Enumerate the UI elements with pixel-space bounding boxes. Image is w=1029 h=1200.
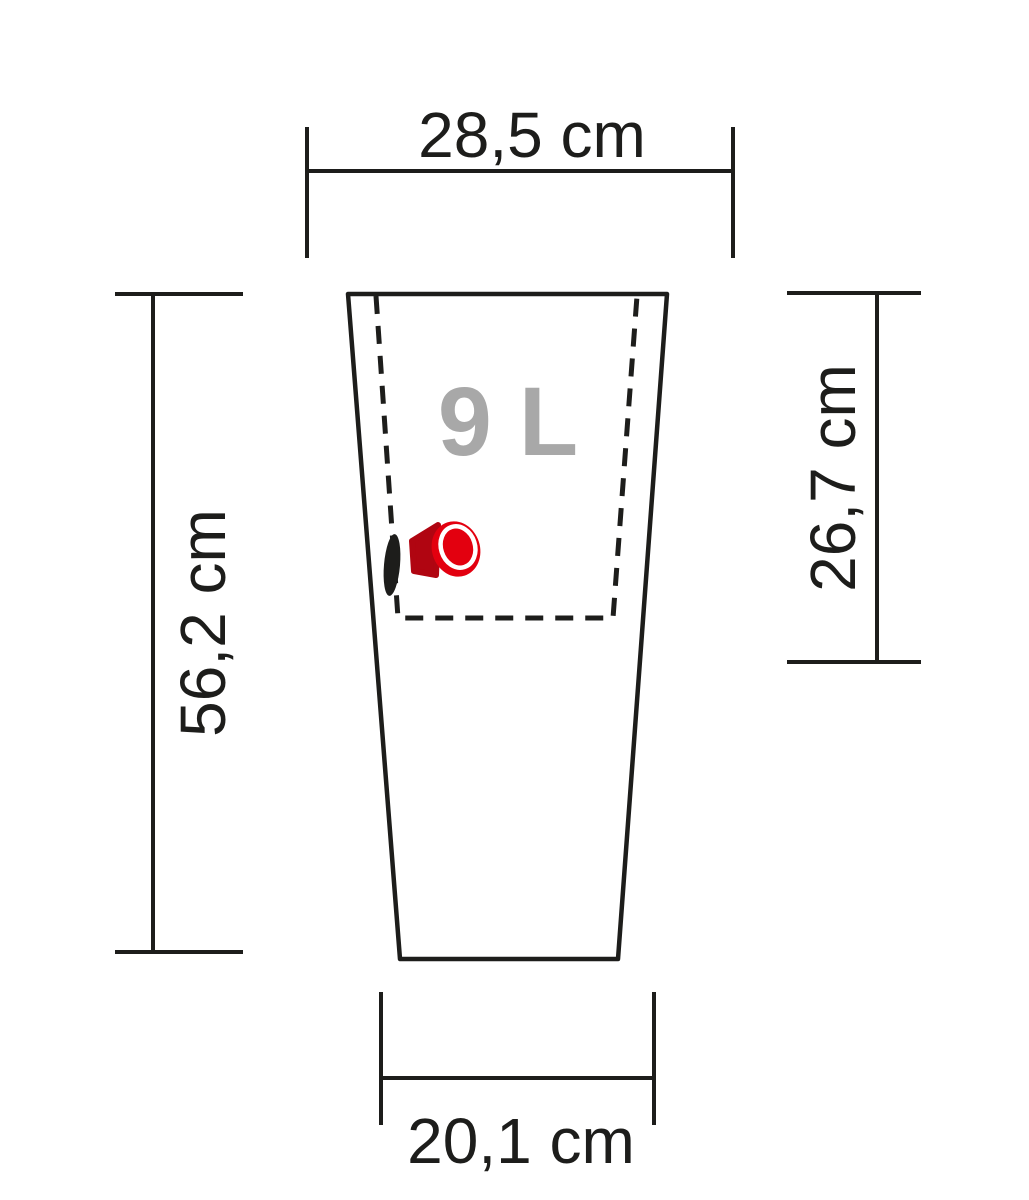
total-height-label: 56,2 cm — [167, 509, 239, 737]
liner-height-label: 26,7 cm — [797, 364, 869, 592]
top-width-label: 28,5 cm — [418, 99, 646, 171]
diagram-linework: 28,5 cm 56,2 cm 26,7 cm 20,1 — [115, 99, 921, 1177]
dimension-total-height: 56,2 cm — [115, 294, 243, 952]
dimension-bottom-width: 20,1 cm — [381, 992, 654, 1177]
dimension-liner-height: 26,7 cm — [787, 293, 921, 662]
planter-dimension-diagram: 28,5 cm 56,2 cm 26,7 cm 20,1 — [0, 0, 1029, 1200]
planter: 9 L — [348, 294, 667, 959]
bottom-width-label: 20,1 cm — [407, 1105, 635, 1177]
volume-label: 9 L — [438, 367, 578, 476]
dimension-top-width: 28,5 cm — [307, 99, 733, 258]
diagram-stage: 28,5 cm 56,2 cm 26,7 cm 20,1 — [0, 0, 1029, 1200]
